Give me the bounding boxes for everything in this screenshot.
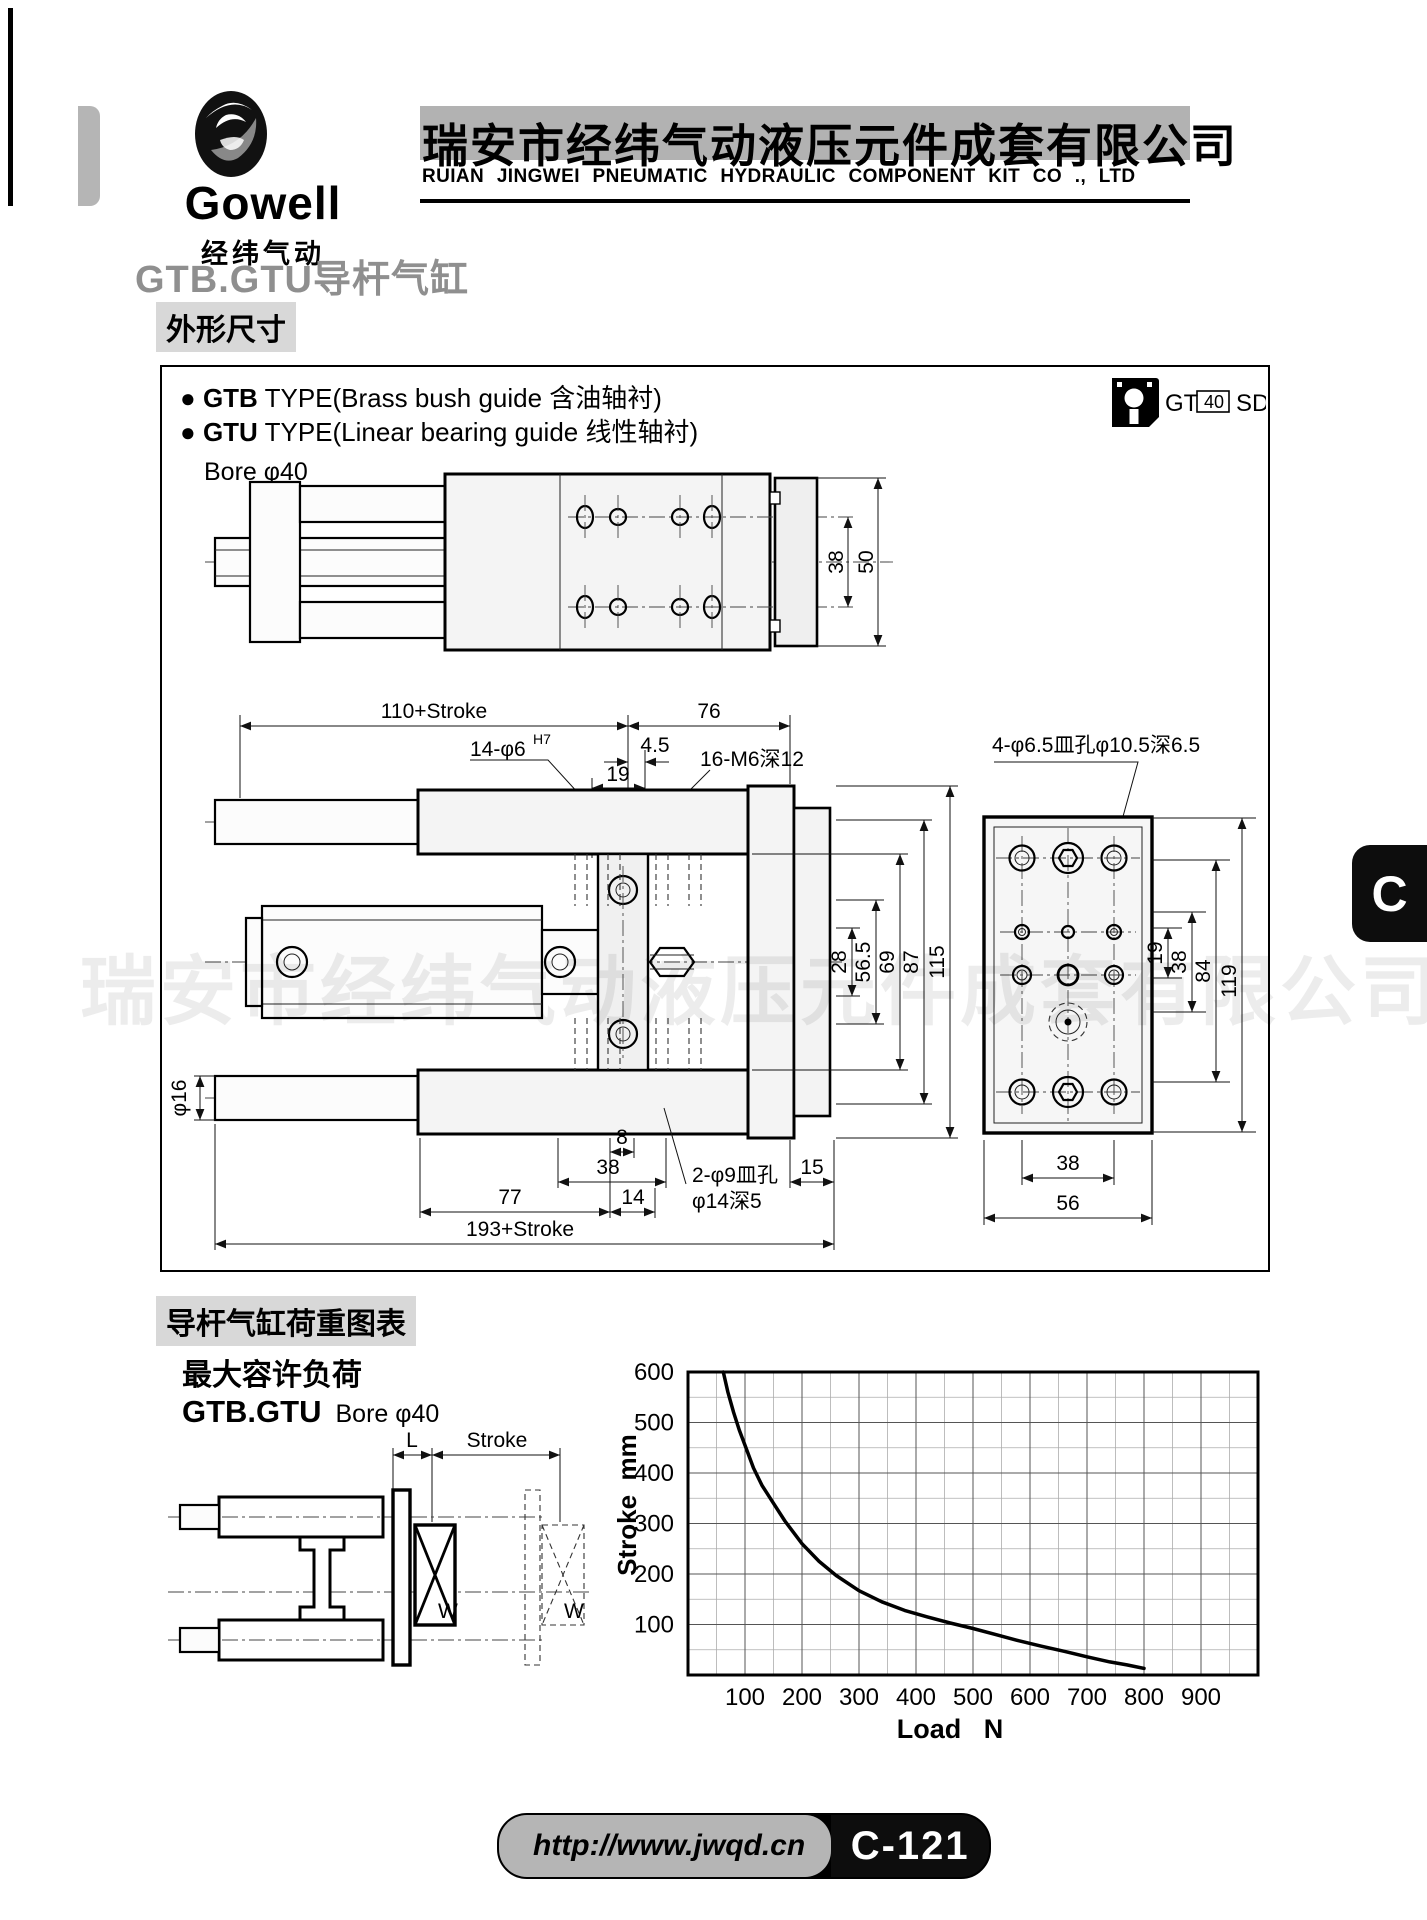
callout-counterbore: 4-φ6.5皿孔φ10.5深6.5 <box>992 734 1200 757</box>
callout-phi9-line1: 2-φ9皿孔 <box>692 1164 778 1187</box>
dim-end-84: 84 <box>1192 959 1215 983</box>
callout-16-m6: 16-M6深12 <box>700 748 804 771</box>
left-decor-bar <box>78 106 100 206</box>
end-bottom-dims: 38 56 <box>984 1140 1152 1225</box>
callout-14-phi6: 14-φ6 <box>470 738 526 761</box>
dim-193-stroke: 193+Stroke <box>466 1218 574 1241</box>
dim-69: 69 <box>876 950 899 973</box>
model-bore-line: GTB.GTUBore φ40 <box>182 1394 439 1430</box>
x-tick-label: 900 <box>1181 1684 1221 1711</box>
end-view-drawing: 4-φ6.5皿孔φ10.5深6.5 <box>984 734 1256 1225</box>
y-tick-label: 600 <box>634 1359 674 1386</box>
model-bore-label: Bore φ40 <box>336 1400 440 1428</box>
diagram-load-w-ghost: W <box>564 1600 584 1623</box>
dim-28: 28 <box>828 950 851 973</box>
dim-56-5: 56.5 <box>852 942 875 983</box>
dim-76: 76 <box>697 700 720 723</box>
x-tick-label: 100 <box>725 1684 765 1711</box>
diagram-load-w: W <box>438 1600 458 1623</box>
chapter-tab-c: C <box>1352 845 1427 942</box>
section-heading-dimensions: 外形尺寸 <box>156 302 296 352</box>
dim-15: 15 <box>800 1156 823 1179</box>
dim-end-38: 38 <box>1168 950 1191 973</box>
dim-side-38: 38 <box>825 550 848 573</box>
dim-110-stroke: 110+Stroke <box>381 700 487 723</box>
footer-url: http://www.jwqd.cn <box>499 1815 831 1877</box>
dim-77: 77 <box>498 1186 521 1209</box>
footer-page-number: C-121 <box>831 1815 989 1877</box>
dim-end-38b: 38 <box>1056 1152 1079 1175</box>
dim-4-5: 4.5 <box>640 734 669 757</box>
order-code-block: GT 40 SD <box>1112 378 1266 427</box>
model-label: GTB.GTU <box>182 1394 322 1429</box>
page-edge-mark <box>8 8 13 206</box>
section-heading-load-chart: 导杆气缸荷重图表 <box>156 1296 416 1346</box>
dim-side-50: 50 <box>855 550 878 573</box>
max-load-subheading: 最大容许负荷 <box>182 1350 362 1394</box>
footer-pill: http://www.jwqd.cn C-121 <box>497 1813 991 1879</box>
callout-14-phi6-sup: H7 <box>533 731 551 747</box>
x-axis-label: Load N <box>897 1714 1004 1744</box>
y-tick-label: 500 <box>634 1410 674 1437</box>
dim-end-56: 56 <box>1056 1192 1079 1215</box>
load-stroke-chart: 1002003004005006007008009001002003004005… <box>600 1355 1300 1775</box>
order-code-bore: 40 <box>1204 392 1224 412</box>
load-curve <box>723 1372 1144 1668</box>
dim-phi16: φ16 <box>168 1080 191 1117</box>
dim-8: 8 <box>616 1126 628 1149</box>
diagram-dim-l: L <box>406 1430 418 1452</box>
catalog-page: Gowell 经纬气动 瑞安市经纬气动液压元件成套有限公司 RUIAN JING… <box>0 0 1427 1920</box>
y-tick-label: 100 <box>634 1612 674 1639</box>
order-code-suffix: SD <box>1236 390 1266 417</box>
x-tick-label: 600 <box>1010 1684 1050 1711</box>
dim-14: 14 <box>621 1186 645 1209</box>
x-tick-label: 500 <box>953 1684 993 1711</box>
dim-87: 87 <box>900 950 923 973</box>
callout-phi9-line2: φ14深5 <box>692 1190 762 1213</box>
x-tick-label: 400 <box>896 1684 936 1711</box>
header-underline <box>420 199 1190 203</box>
side-view-drawing: 38 50 <box>205 474 893 650</box>
x-tick-label: 800 <box>1124 1684 1164 1711</box>
front-view-drawing: 110+Stroke 76 4.5 14-φ6 H7 16-M6深12 19 <box>168 700 958 1250</box>
end-right-dims: 19 38 84 119 <box>1144 818 1256 1132</box>
technical-drawings: GT 40 SD <box>162 367 1266 1268</box>
dim-19: 19 <box>606 763 629 786</box>
dim-end-19: 19 <box>1144 941 1167 964</box>
x-tick-label: 200 <box>782 1684 822 1711</box>
company-name-en: RUIAN JINGWEI PNEUMATIC HYDRAULIC COMPON… <box>422 166 1194 188</box>
diagram-dim-stroke: Stroke <box>467 1430 528 1452</box>
dim-38: 38 <box>596 1156 619 1179</box>
gowell-logo-sphere <box>186 88 276 180</box>
logo-wordmark: Gowell <box>148 176 378 230</box>
page-title: GTB.GTU导杆气缸 <box>135 248 469 303</box>
load-diagram: L Stroke W W <box>160 1430 610 1720</box>
x-tick-label: 700 <box>1067 1684 1107 1711</box>
dim-115: 115 <box>926 945 949 978</box>
dim-end-119: 119 <box>1218 964 1241 997</box>
x-tick-label: 300 <box>839 1684 879 1711</box>
order-code-prefix: GT <box>1165 390 1199 417</box>
y-axis-label: Stroke mm <box>612 1434 642 1576</box>
